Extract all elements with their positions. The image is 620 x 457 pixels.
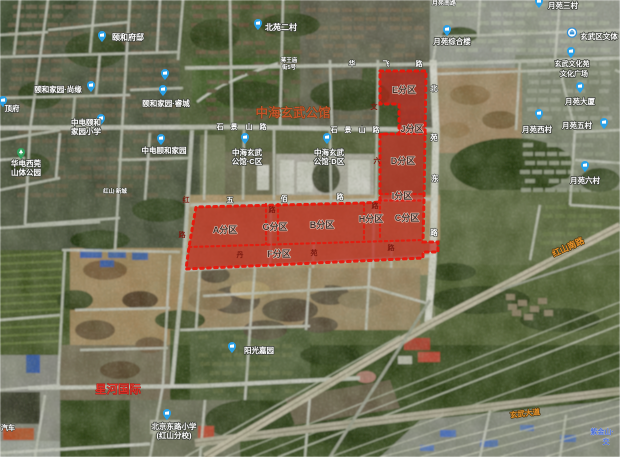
svg-text:蒋王庙: 蒋王庙 <box>281 56 298 64</box>
svg-text:飞: 飞 <box>383 60 390 68</box>
svg-text:颐和家园·尚缘: 颐和家园·尚缘 <box>34 84 82 94</box>
svg-text:顶府: 顶府 <box>5 103 20 113</box>
svg-text:D分区: D分区 <box>391 155 416 166</box>
svg-text:公馆·C区: 公馆·C区 <box>232 156 263 166</box>
svg-text:星河国际: 星河国际 <box>95 382 141 396</box>
svg-text:路: 路 <box>416 59 424 68</box>
svg-text:五: 五 <box>227 196 234 204</box>
svg-text:玄武区文体: 玄武区文体 <box>580 31 618 41</box>
svg-text:路: 路 <box>372 201 380 210</box>
svg-text:中电颐和: 中电颐和 <box>71 117 101 127</box>
svg-text:佰: 佰 <box>281 194 288 203</box>
svg-text:景: 景 <box>230 122 238 131</box>
svg-text:石: 石 <box>216 123 224 131</box>
svg-text:汽车: 汽车 <box>1 423 15 432</box>
svg-text:路: 路 <box>388 243 396 252</box>
svg-text:月苑南路: 月苑南路 <box>431 0 457 7</box>
svg-text:(红山分校): (红山分校) <box>157 430 192 440</box>
svg-text:H分区: H分区 <box>359 213 384 224</box>
svg-text:月苑六村: 月苑六村 <box>569 175 600 185</box>
svg-text:文: 文 <box>371 102 379 111</box>
svg-text:苑: 苑 <box>310 248 318 257</box>
svg-text:华: 华 <box>349 59 356 68</box>
svg-text:中海玄武公馆: 中海玄武公馆 <box>255 105 330 120</box>
svg-text:路: 路 <box>179 230 187 239</box>
svg-text:B分区: B分区 <box>310 219 335 230</box>
svg-text:山: 山 <box>246 122 253 131</box>
svg-text:文化广场: 文化广场 <box>560 69 588 78</box>
svg-text:中海玄武: 中海玄武 <box>314 147 344 157</box>
svg-text:山: 山 <box>359 125 366 134</box>
svg-text:交: 交 <box>603 437 611 446</box>
svg-text:山体公园: 山体公园 <box>11 167 41 177</box>
svg-text:丹: 丹 <box>236 251 244 259</box>
svg-text:F分区: F分区 <box>267 248 291 259</box>
svg-text:E分区: E分区 <box>392 84 416 95</box>
svg-text:月苑三村: 月苑三村 <box>547 0 578 10</box>
svg-text:北: 北 <box>430 83 438 93</box>
svg-text:路: 路 <box>373 125 381 134</box>
svg-text:家园小学: 家园小学 <box>71 126 101 136</box>
svg-text:景: 景 <box>344 125 352 134</box>
svg-text:北京东路小学: 北京东路小学 <box>152 421 197 431</box>
svg-text:路: 路 <box>269 205 277 214</box>
svg-text:路: 路 <box>337 192 345 201</box>
svg-text:颐和府邸: 颐和府邸 <box>112 32 144 42</box>
svg-text:路: 路 <box>260 122 268 131</box>
svg-text:月苑综合楼: 月苑综合楼 <box>432 36 471 46</box>
svg-text:紫金山·: 紫金山· <box>590 427 613 436</box>
svg-text:华电西莞: 华电西莞 <box>11 158 41 168</box>
svg-text:六: 六 <box>374 156 381 165</box>
svg-text:月苑西村: 月苑西村 <box>521 124 552 134</box>
svg-text:月苑大厦: 月苑大厦 <box>564 96 595 106</box>
svg-text:苑: 苑 <box>429 132 438 142</box>
svg-text:中电颐和家园: 中电颐和家园 <box>142 145 187 155</box>
svg-text:颐和家园·睿城: 颐和家园·睿城 <box>142 98 190 108</box>
svg-text:月苑五村: 月苑五村 <box>561 120 592 130</box>
svg-text:公馆·D区: 公馆·D区 <box>314 156 345 166</box>
svg-text:街5号: 街5号 <box>281 63 297 71</box>
svg-text:石: 石 <box>330 126 338 134</box>
svg-text:红: 红 <box>183 195 190 204</box>
svg-text:中海玄武: 中海玄武 <box>232 147 262 157</box>
svg-text:J分区: J分区 <box>400 123 423 134</box>
svg-text:G分区: G分区 <box>262 221 287 232</box>
svg-text:C分区: C分区 <box>395 212 420 223</box>
svg-text:阳光嘉园: 阳光嘉园 <box>244 345 274 355</box>
svg-text:红山·新城: 红山·新城 <box>103 187 127 195</box>
svg-text:I分区: I分区 <box>392 190 413 201</box>
svg-text:北苑二村: 北苑二村 <box>265 22 297 32</box>
svg-text:路: 路 <box>430 227 438 237</box>
svg-text:A分区: A分区 <box>213 224 238 235</box>
svg-text:东: 东 <box>431 173 439 183</box>
svg-text:玄武文化苑: 玄武文化苑 <box>555 59 590 68</box>
